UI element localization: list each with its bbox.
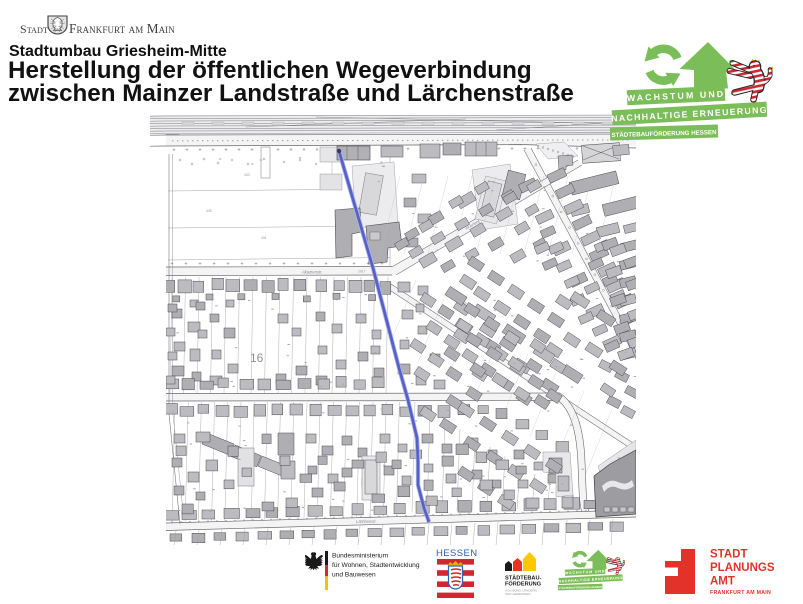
svg-text:AMT: AMT — [710, 576, 735, 588]
svg-text:STÄDTEBAU-: STÄDTEBAU- — [505, 575, 541, 582]
svg-text:Lärchenstr.: Lärchenstr. — [356, 519, 377, 524]
svg-text:433: 433 — [244, 173, 250, 177]
svg-text:FRANKFURT AM MAIN: FRANKFURT AM MAIN — [710, 590, 771, 596]
svg-text:435: 435 — [206, 209, 212, 213]
svg-text:PLANUNGS: PLANUNGS — [710, 562, 775, 574]
svg-text:für Wohnen, Stadtentwicklung: für Wohnen, Stadtentwicklung — [332, 562, 420, 569]
svg-text:Akazienstr.: Akazienstr. — [301, 270, 323, 275]
svg-text:Bundesministerium: Bundesministerium — [332, 553, 389, 560]
svg-text:431: 431 — [261, 236, 267, 240]
svg-text:und Bauwesen: und Bauwesen — [332, 572, 376, 579]
svg-text:STADT: STADT — [710, 549, 747, 561]
svg-text:16: 16 — [250, 351, 264, 365]
svg-text:HESSEN: HESSEN — [436, 548, 477, 559]
svg-text:UND GEMEINDEN: UND GEMEINDEN — [505, 592, 531, 595]
svg-text:2017: 2017 — [358, 270, 366, 274]
svg-text:FÖRDERUNG: FÖRDERUNG — [505, 581, 541, 588]
